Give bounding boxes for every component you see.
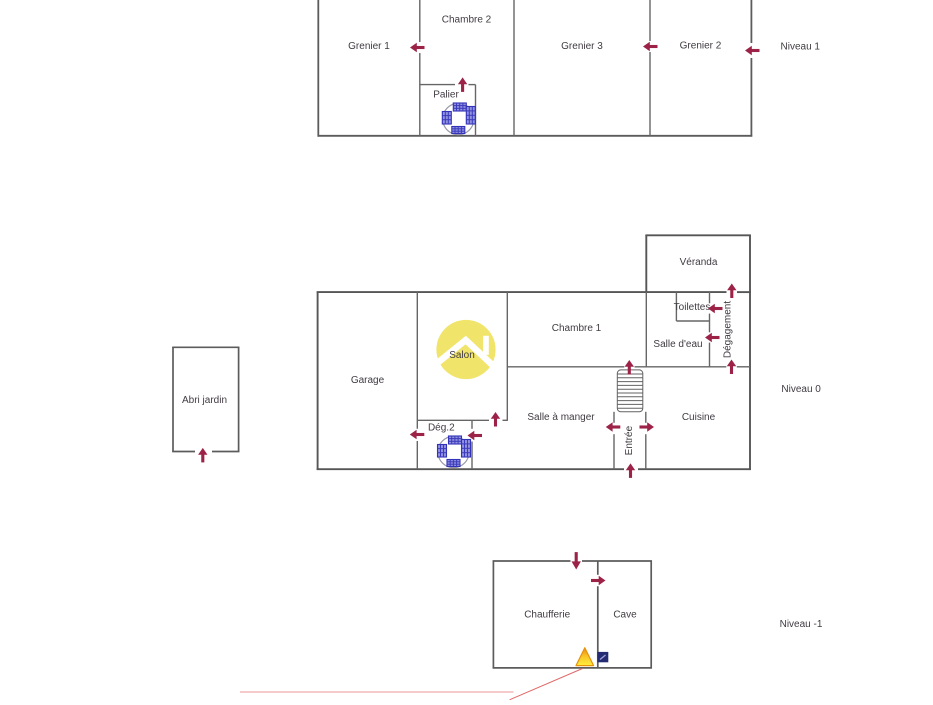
svg-text:Chaufferie: Chaufferie: [524, 610, 570, 621]
svg-text:Salon: Salon: [449, 350, 475, 361]
svg-text:Grenier 1: Grenier 1: [348, 41, 390, 52]
svg-text:Salle d'eau: Salle d'eau: [653, 339, 702, 350]
svg-text:Entrée: Entrée: [624, 425, 635, 455]
svg-text:Cuisine: Cuisine: [682, 412, 716, 423]
svg-text:Cave: Cave: [613, 610, 637, 621]
svg-text:Garage: Garage: [351, 375, 385, 386]
svg-text:Grenier 2: Grenier 2: [680, 41, 722, 52]
svg-text:Niveau -1: Niveau -1: [780, 619, 823, 630]
svg-text:Chambre 1: Chambre 1: [552, 323, 602, 334]
svg-text:Dég.2: Dég.2: [428, 423, 455, 434]
svg-text:Niveau 0: Niveau 0: [781, 384, 821, 395]
svg-text:Abri jardin: Abri jardin: [182, 395, 227, 406]
svg-text:Palier: Palier: [433, 90, 459, 101]
svg-text:Dégagement: Dégagement: [723, 301, 734, 358]
svg-text:Toilettes: Toilettes: [674, 302, 711, 313]
svg-text:Salle à manger: Salle à manger: [527, 412, 595, 423]
svg-text:Chambre 2: Chambre 2: [442, 15, 492, 26]
svg-text:Niveau 1: Niveau 1: [781, 42, 821, 53]
svg-text:Grenier 3: Grenier 3: [561, 41, 603, 52]
svg-text:Véranda: Véranda: [680, 257, 718, 268]
